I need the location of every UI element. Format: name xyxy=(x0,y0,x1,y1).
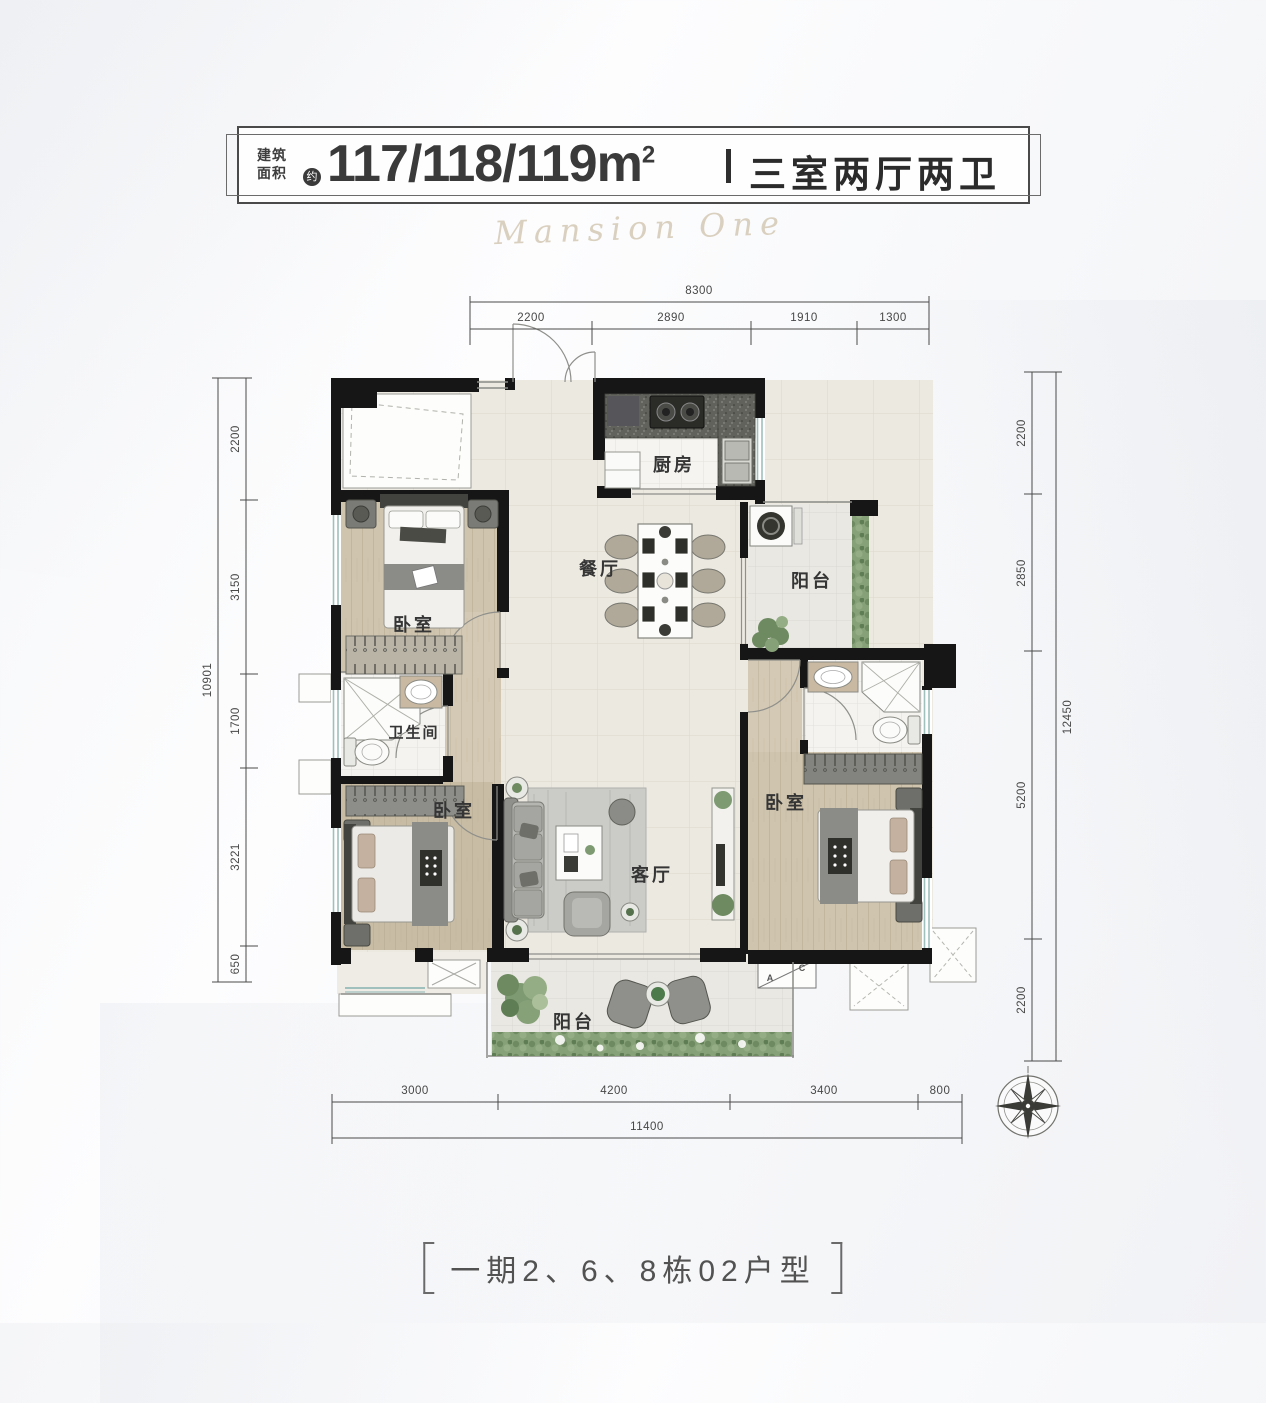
room-label-living: 客厅 xyxy=(631,861,673,887)
master-bedroom-furniture xyxy=(804,754,922,922)
dim-bottom-seg-1: 4200 xyxy=(600,1085,628,1097)
room-label-bedroom-master: 卧室 xyxy=(765,789,807,815)
dim-top-seg-3: 1300 xyxy=(879,312,907,324)
dim-top-seg-2: 1910 xyxy=(790,312,818,324)
dim-top-seg-1: 2890 xyxy=(657,312,685,324)
dim-right-total: 12450 xyxy=(1062,700,1074,734)
dim-left-seg-2: 1700 xyxy=(230,707,242,735)
room-label-service-balcony: 阳台 xyxy=(791,567,833,593)
dim-right-seg-3: 2200 xyxy=(1016,986,1028,1014)
dim-top-seg-0: 2200 xyxy=(517,312,545,324)
approx-badge: 约 xyxy=(303,168,321,186)
compass-rose-icon xyxy=(995,1066,1061,1139)
room-label-south-balcony: 阳台 xyxy=(553,1008,595,1034)
caption-left-bracket xyxy=(423,1242,434,1294)
caption-text: 一期2、6、8栋02户型 xyxy=(450,1246,815,1290)
room-label-bedroom-left: 卧室 xyxy=(433,797,475,823)
dim-left-seg-4: 650 xyxy=(230,954,242,975)
dim-left-seg-1: 3150 xyxy=(230,573,242,601)
dim-left-total: 10901 xyxy=(202,663,214,697)
header-box: 建筑 面积 约 117/118/119m2 三室两厅两卫 xyxy=(237,126,1030,204)
dim-right-seg-2: 5200 xyxy=(1016,781,1028,809)
area-value: 117/118/119m2 xyxy=(327,134,654,194)
caption-right-bracket xyxy=(832,1242,843,1294)
room-label-dining: 餐厅 xyxy=(579,555,621,581)
dim-top-total: 8300 xyxy=(685,285,713,297)
area-label: 建筑 面积 xyxy=(257,146,287,182)
room-label-bedroom-top: 卧室 xyxy=(393,611,435,637)
room-label-kitchen: 厨房 xyxy=(653,451,695,477)
dim-right-seg-0: 2200 xyxy=(1016,419,1028,447)
dim-bottom-seg-0: 3000 xyxy=(401,1085,429,1097)
area-superscript: 2 xyxy=(642,142,654,169)
dim-bottom-seg-3: 800 xyxy=(930,1085,951,1097)
ac-unit-letter-a: A xyxy=(767,973,774,983)
dim-left-seg-3: 3221 xyxy=(230,843,242,871)
dim-bottom-seg-2: 3400 xyxy=(810,1085,838,1097)
dim-left-seg-0: 2200 xyxy=(230,425,242,453)
dining-furniture xyxy=(605,524,725,638)
ac-unit-letter-c: C xyxy=(799,963,806,973)
layout-text: 三室两厅两卫 xyxy=(749,144,1001,198)
footer-caption: 一期2、6、8栋02户型 xyxy=(423,1242,842,1294)
dim-right-seg-1: 2850 xyxy=(1016,559,1028,587)
dim-bottom-total: 11400 xyxy=(630,1121,664,1133)
room-label-bathroom: 卫生间 xyxy=(388,722,439,743)
header-divider xyxy=(726,149,731,183)
